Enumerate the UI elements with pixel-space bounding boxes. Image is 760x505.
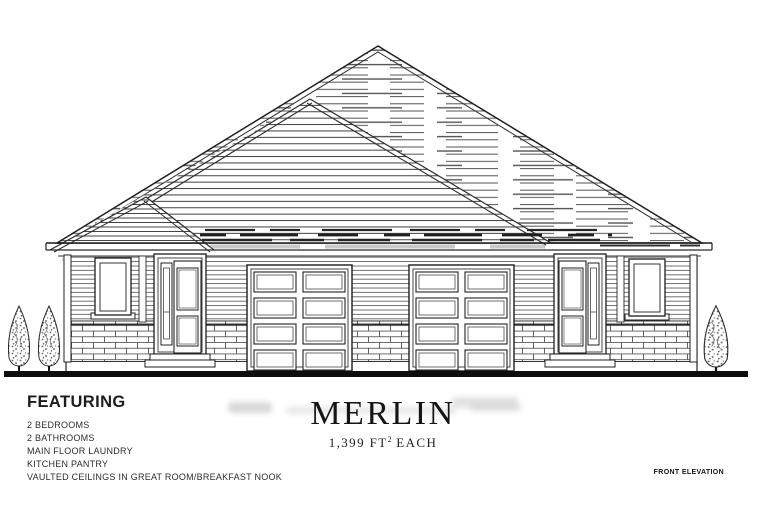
tree-icon bbox=[38, 306, 59, 373]
left-door-step bbox=[150, 354, 210, 360]
right-window bbox=[625, 259, 669, 320]
left-entry-door bbox=[145, 254, 215, 367]
right-door-step bbox=[550, 354, 610, 360]
right-door-step bbox=[545, 360, 615, 367]
right-garage-door bbox=[409, 265, 514, 371]
feature-item: KITCHEN PANTRY bbox=[27, 458, 282, 471]
left-door-step bbox=[145, 360, 215, 367]
right-entry-door bbox=[545, 254, 615, 367]
ground-line bbox=[4, 371, 748, 377]
left-window bbox=[91, 258, 135, 319]
left-garage-door bbox=[247, 265, 352, 371]
title-block: MERLIN 1,399 FT2 EACH bbox=[233, 396, 533, 449]
view-label: FRONT ELEVATION bbox=[654, 469, 724, 476]
plan-title: MERLIN bbox=[233, 396, 533, 432]
elevation-sheet: FEATURING 2 BEDROOMS 2 BATHROOMS MAIN FL… bbox=[0, 0, 760, 505]
tree-icon bbox=[704, 306, 728, 374]
plan-area: 1,399 FT2 EACH bbox=[233, 436, 533, 449]
feature-item: VAULTED CEILINGS IN GREAT ROOM/BREAKFAST… bbox=[27, 471, 282, 484]
tree-icon bbox=[8, 306, 29, 373]
